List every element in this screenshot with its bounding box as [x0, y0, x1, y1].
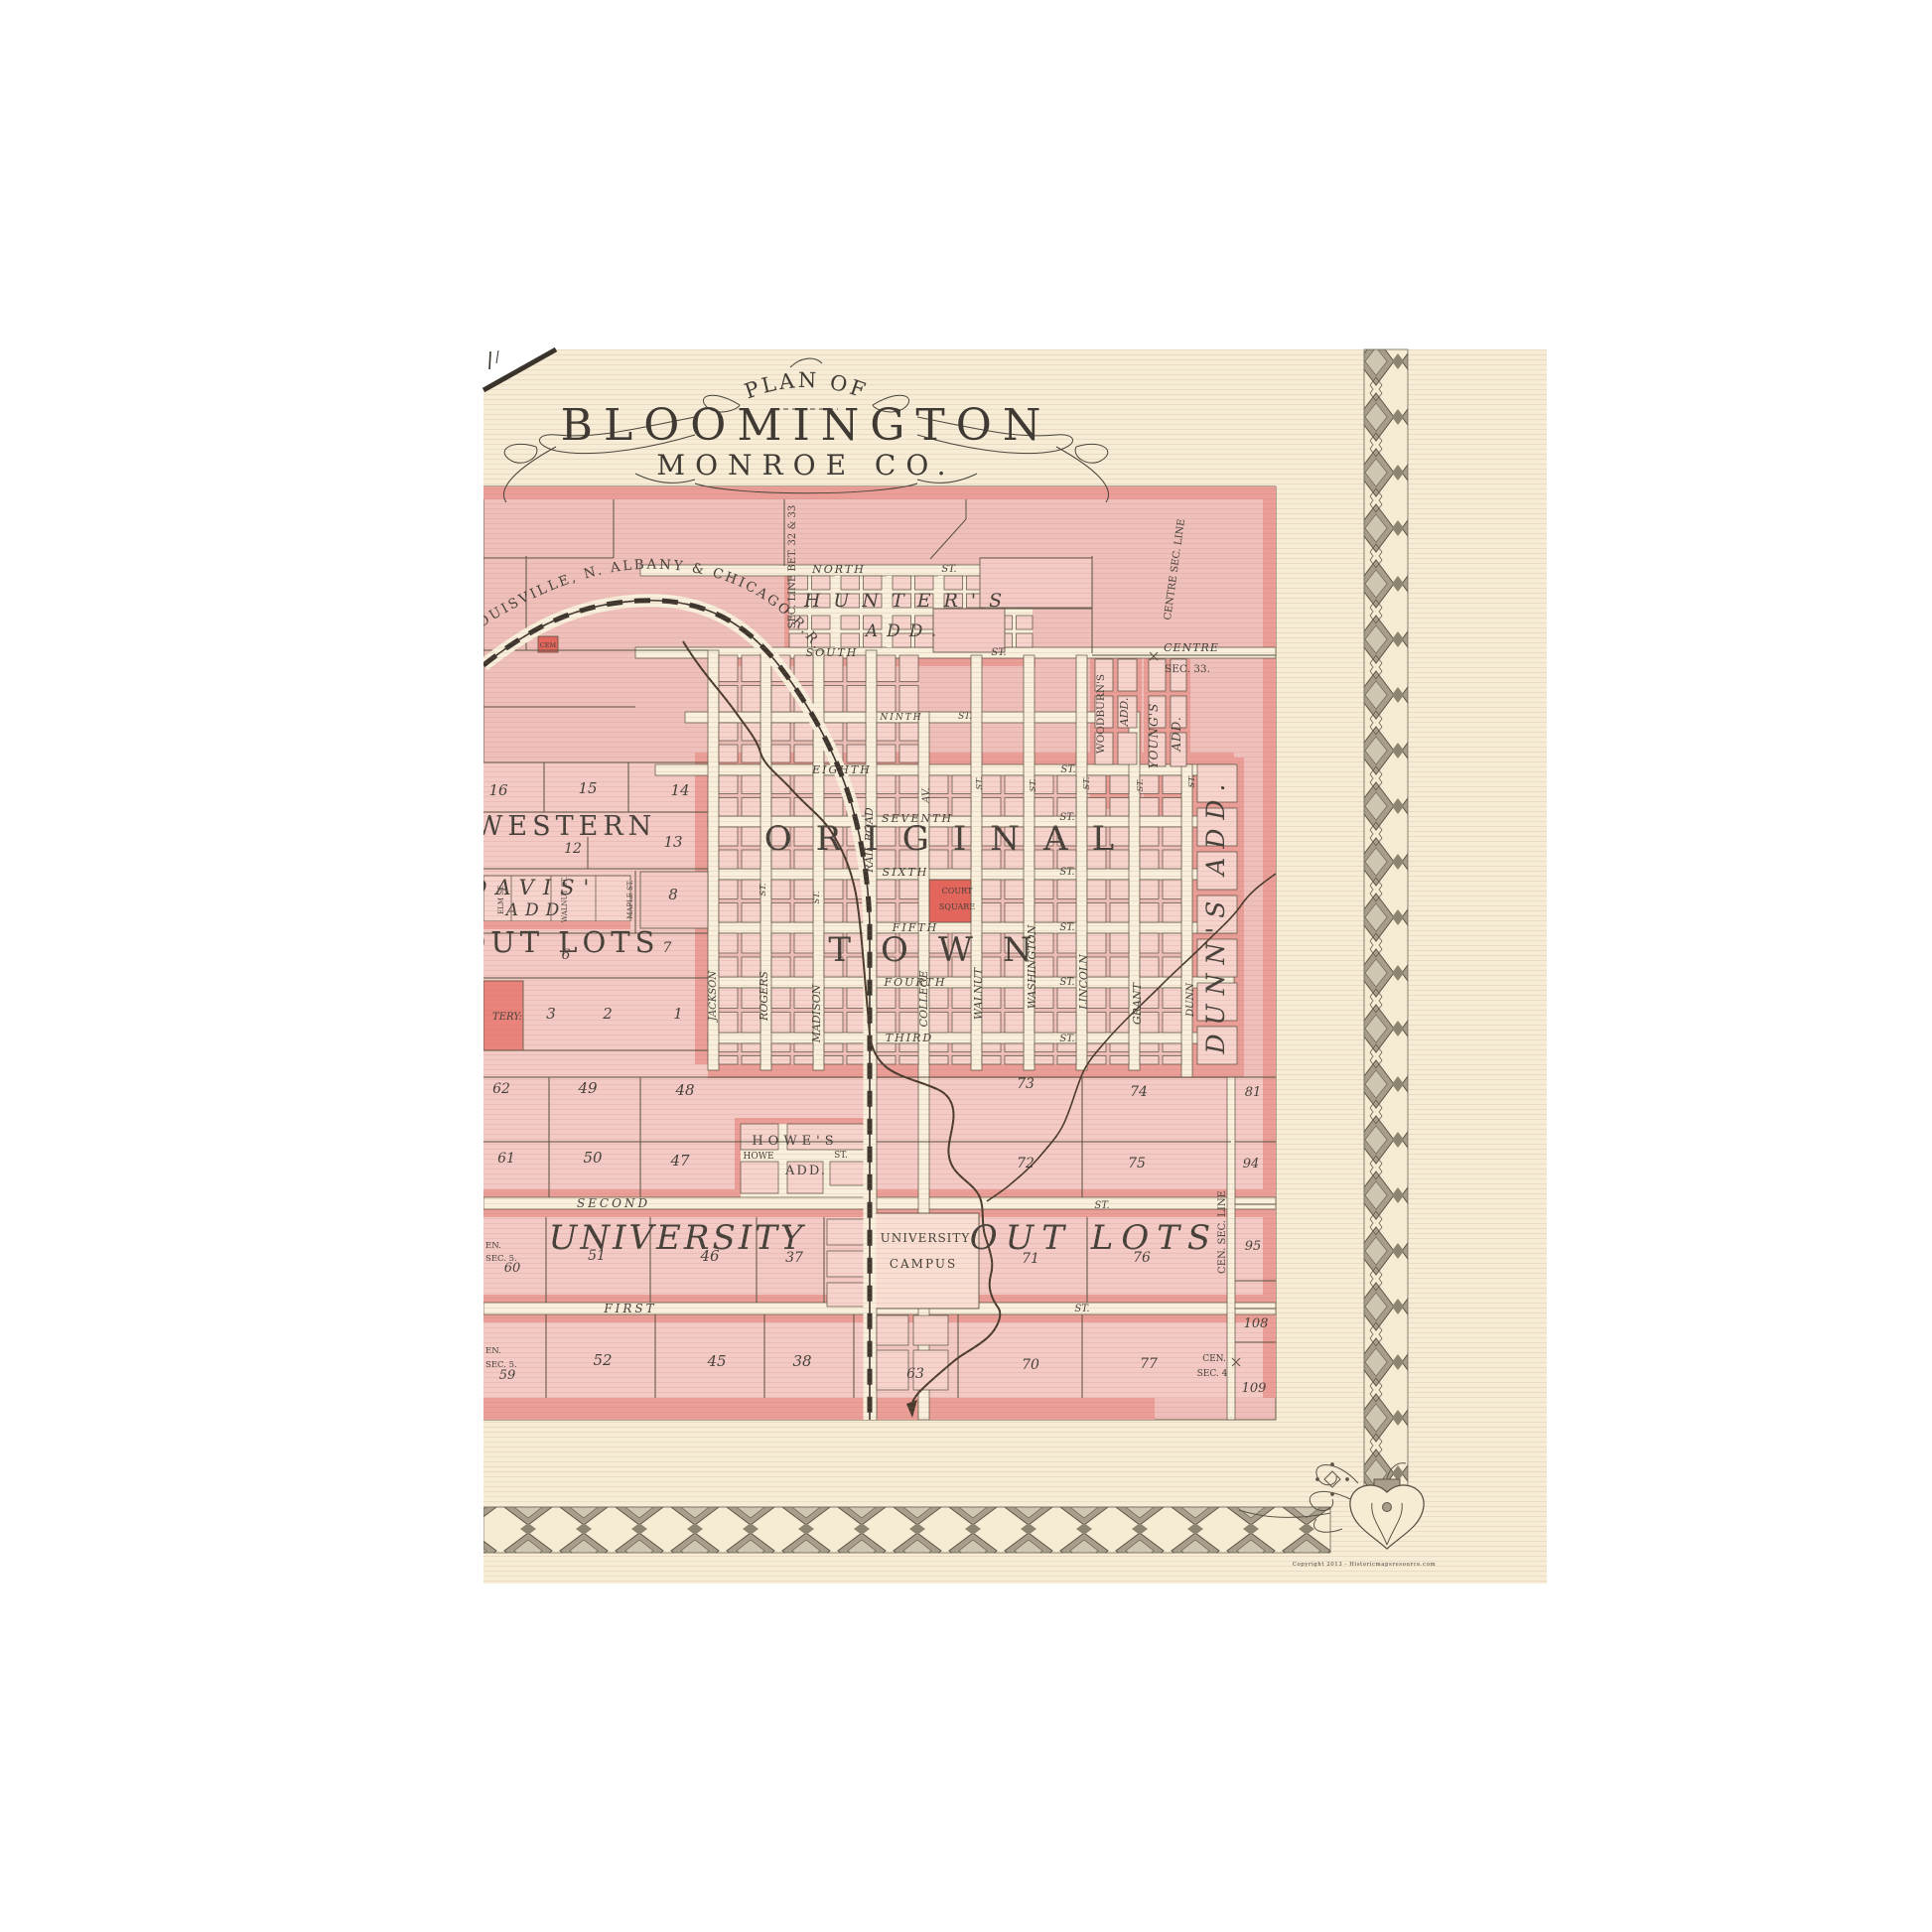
bloomington-plat-map: LOUISVILLE, N. ALBANY & CHICAGO R.R. NOR… — [0, 0, 1932, 1932]
border-strip-right — [1364, 349, 1408, 1499]
copyright-microtext: Copyright 2013 - Historicmapsresource.co… — [1293, 1562, 1437, 1568]
title-county: MONROE CO. — [656, 449, 955, 482]
title-city: BLOOMINGTON — [561, 400, 1052, 451]
screenshot-canvas: LOUISVILLE, N. ALBANY & CHICAGO R.R. NOR… — [0, 0, 1932, 1932]
border-strip-bottom — [483, 1507, 1330, 1553]
